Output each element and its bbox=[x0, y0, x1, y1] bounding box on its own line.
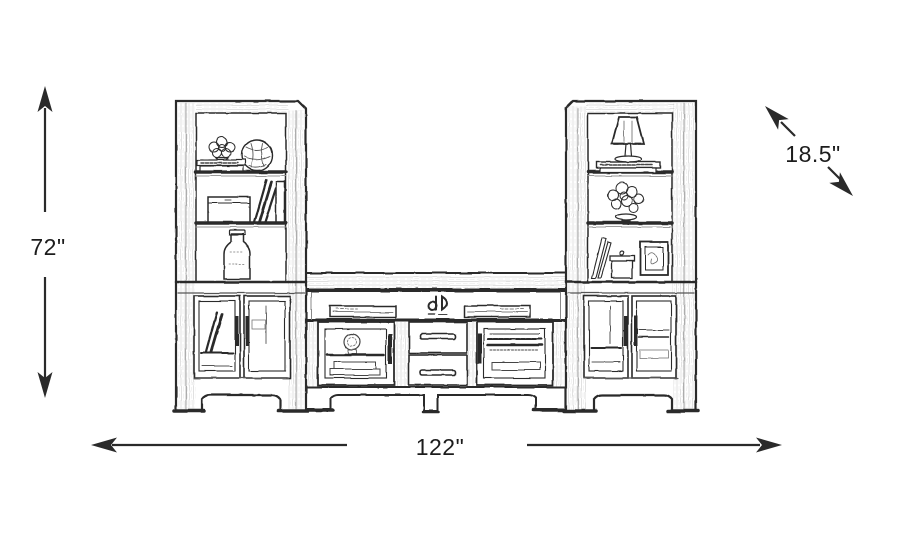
right-pier-flat-books bbox=[596, 162, 660, 173]
media-device-left bbox=[330, 306, 396, 317]
width-dimension-label: 122" bbox=[404, 434, 476, 460]
dimension-arrows bbox=[38, 86, 854, 453]
right-pier-left-door-handle bbox=[624, 316, 628, 346]
right-pier-sketch bbox=[564, 101, 698, 411]
wall-unit-sketch bbox=[174, 101, 698, 412]
left-pier-box-decor bbox=[208, 197, 250, 222]
media-device-right bbox=[464, 306, 530, 317]
console-right-door bbox=[477, 322, 553, 385]
left-pier-flat-books bbox=[197, 160, 245, 171]
console-left-door bbox=[318, 322, 394, 385]
right-pier-picture-frame bbox=[640, 242, 668, 275]
left-pier-orb-decor bbox=[242, 140, 273, 171]
depth-dimension-label: 18.5" bbox=[777, 141, 849, 167]
console-right-door-handle bbox=[478, 334, 482, 364]
diagram-svg bbox=[0, 0, 900, 550]
console-left-door-handle bbox=[388, 334, 392, 364]
left-pier-left-door-handle bbox=[235, 316, 239, 346]
tv-console-sketch bbox=[301, 273, 570, 412]
height-dimension-label: 72" bbox=[20, 234, 76, 260]
left-pier-sketch bbox=[174, 101, 308, 411]
furniture-dimensions-diagram: 72" 122" 18.5" bbox=[0, 0, 900, 550]
right-pier-right-door-handle bbox=[635, 316, 639, 346]
left-pier-right-door-handle bbox=[246, 316, 250, 346]
arrowhead-down-right-icon bbox=[829, 172, 853, 196]
